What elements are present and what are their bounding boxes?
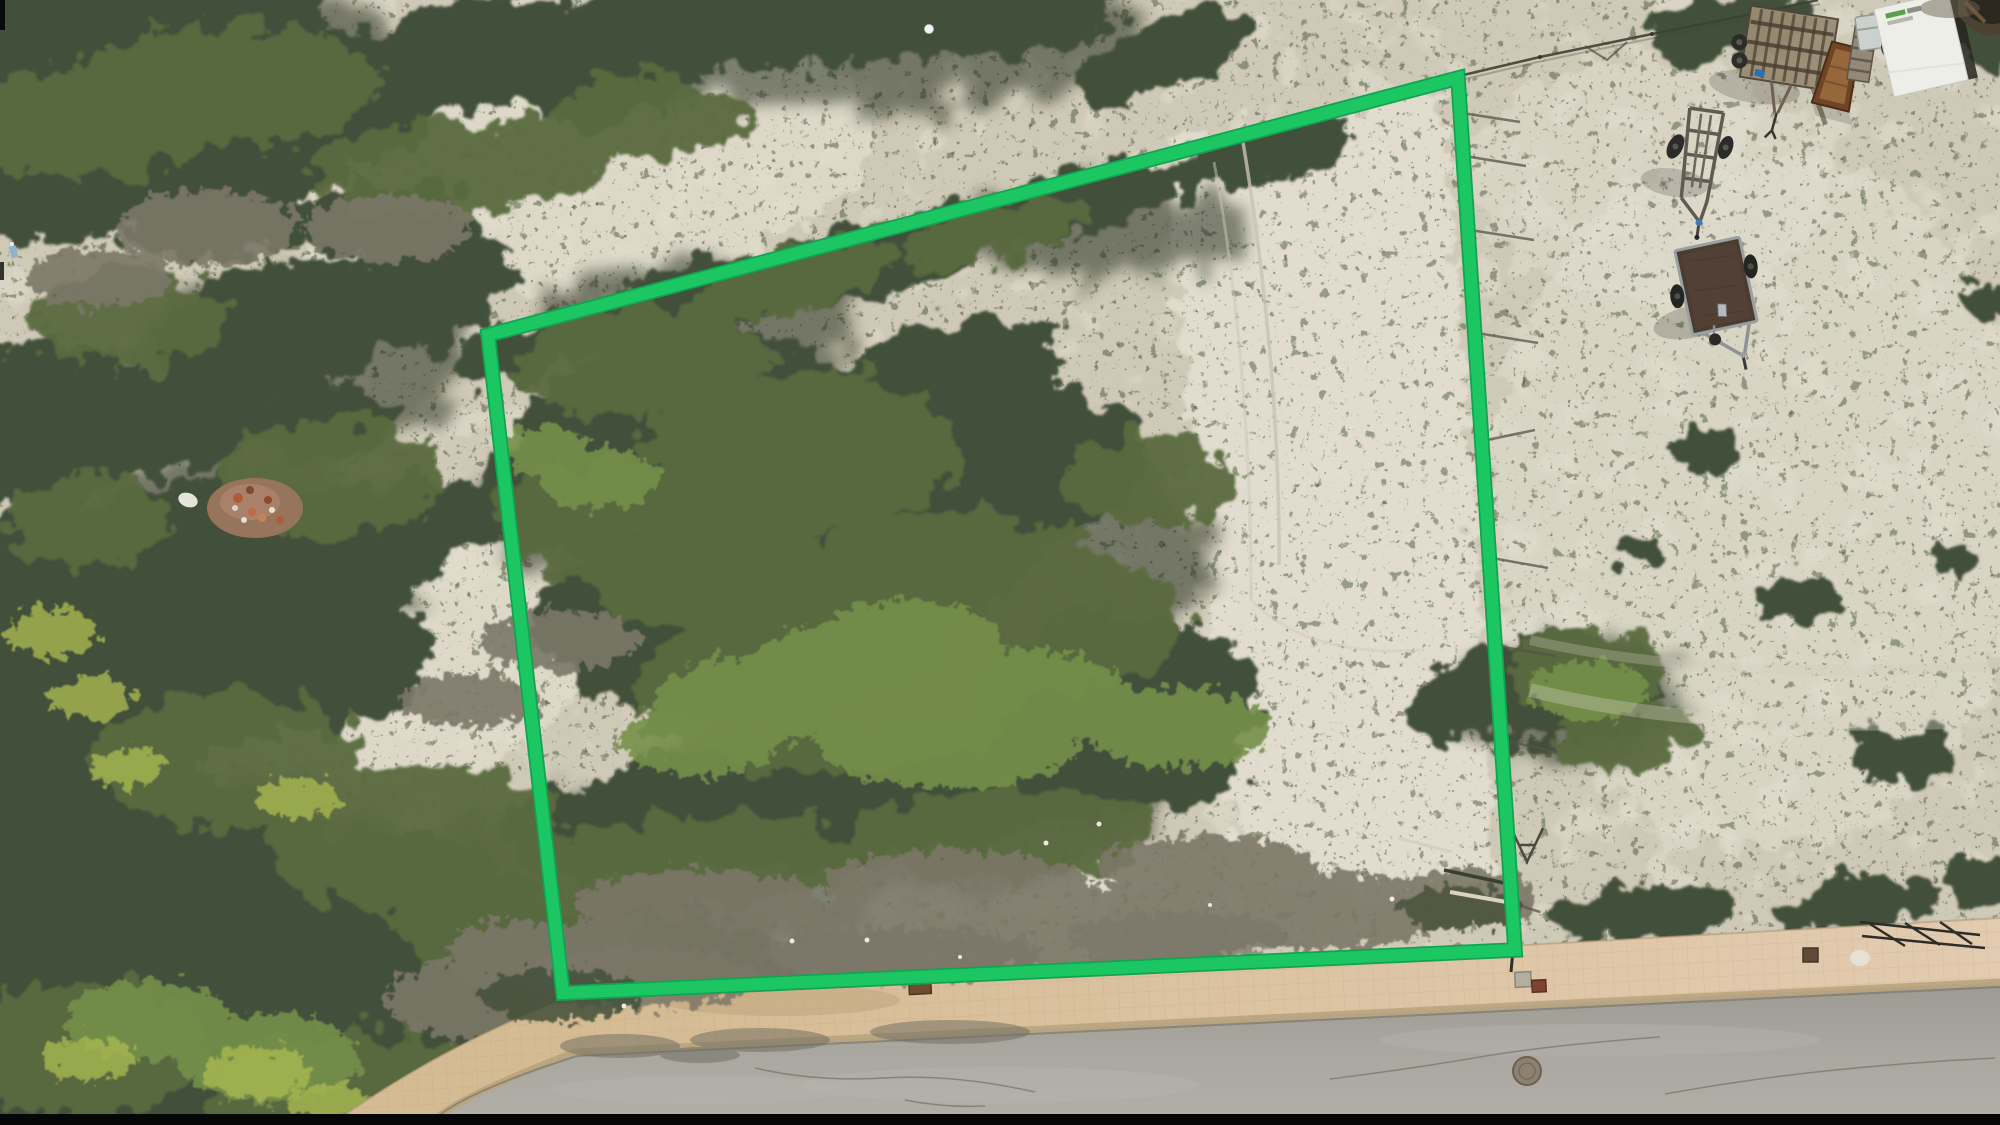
access-panel-right [1803,948,1818,962]
paint-scuff [1850,950,1870,966]
edge-artifact-top-left [0,0,5,30]
edge-artifact-left [0,262,4,280]
letterbox-bar [0,1114,2000,1125]
manhole-cover [1513,1057,1541,1085]
aerial-photo [0,0,2000,1125]
white-ball [925,25,934,34]
